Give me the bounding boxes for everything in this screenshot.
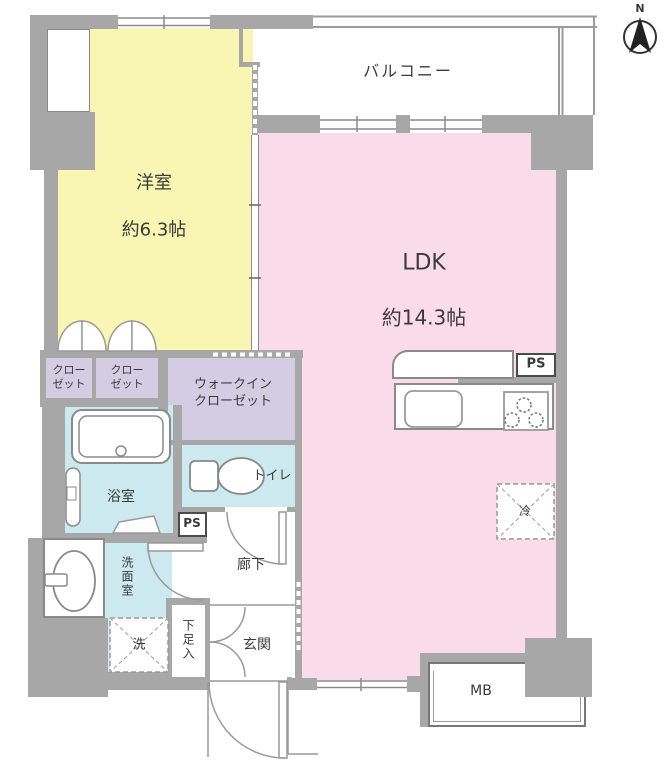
ldk-label: LDK 約14.3帖 [382, 224, 467, 357]
western-room-label: 洋室 約6.3帖 [122, 149, 187, 266]
shoe-door-arc-lower [210, 642, 245, 677]
toilet-label: トイレ [252, 469, 291, 486]
wall [30, 15, 47, 115]
wall [420, 653, 525, 662]
wall-pillar [525, 638, 592, 697]
toilet-door-leaf [279, 512, 286, 564]
wall [28, 618, 108, 697]
wall [210, 15, 313, 29]
entrance-door-leaf [279, 682, 287, 758]
window-western-room [118, 15, 210, 29]
wall [258, 115, 320, 133]
ldk-name: LDK [382, 250, 467, 279]
refrigerator-label: 冷 [519, 504, 531, 520]
balcony-label: バルコニー [363, 62, 453, 83]
washing-machine-label: 洗 [132, 638, 145, 655]
western-room-size: 約6.3帖 [122, 219, 187, 242]
wall [482, 115, 531, 133]
exterior-alcove [47, 29, 90, 112]
wall [531, 115, 593, 170]
wall-dashed-partition [252, 62, 258, 135]
pipe-space-kitchen-label: PS [527, 357, 546, 374]
wall [30, 112, 95, 170]
closet-left-label: クロー ゼット [53, 364, 86, 393]
balcony-railing [313, 17, 597, 116]
wall [295, 353, 302, 680]
porch-outline [208, 682, 318, 757]
wall [205, 605, 210, 680]
wall [45, 350, 303, 358]
walk-in-closet-label: ウォークイン クローゼット [194, 377, 272, 411]
vanity-cabinet [43, 538, 105, 618]
meter-box-label: MB [470, 682, 492, 700]
western-room-name: 洋室 [122, 172, 187, 195]
room-washroom [105, 543, 172, 677]
wall [166, 598, 210, 605]
floor-plan: N バルコニー 洋室 約6.3帖 LDK 約14.3帖 クロー ゼット クロー … [0, 0, 671, 771]
wall [44, 170, 58, 350]
wall [239, 29, 243, 66]
hallway-label: 廊下 [237, 556, 265, 574]
sliding-door-track [251, 135, 259, 350]
shoe-door-arc-upper [210, 607, 245, 642]
entrance-door-arc [209, 682, 285, 758]
wall [168, 440, 302, 445]
wall [42, 405, 65, 533]
room-bathroom [65, 405, 173, 533]
wall [420, 653, 428, 727]
compass-north-label: N [635, 2, 644, 16]
wall [108, 672, 166, 690]
closet-right-label: クロー ゼット [111, 364, 144, 393]
wall [556, 168, 567, 638]
pipe-space-hall-label: PS [183, 516, 200, 532]
entrance-label: 玄関 [243, 636, 271, 654]
wall [396, 115, 410, 133]
door-swings [148, 512, 318, 758]
wall [290, 678, 317, 690]
kitchen-unit [394, 383, 554, 430]
washroom-label: 洗面室 [121, 556, 133, 598]
bathroom-label: 浴室 [107, 488, 135, 506]
wall [92, 358, 96, 398]
wall [166, 605, 172, 680]
wall [28, 538, 43, 618]
wall [166, 677, 210, 690]
compass-icon [624, 17, 656, 53]
ldk-size: 約14.3帖 [382, 304, 467, 330]
shoe-storage-label: 下足入 [182, 619, 194, 661]
